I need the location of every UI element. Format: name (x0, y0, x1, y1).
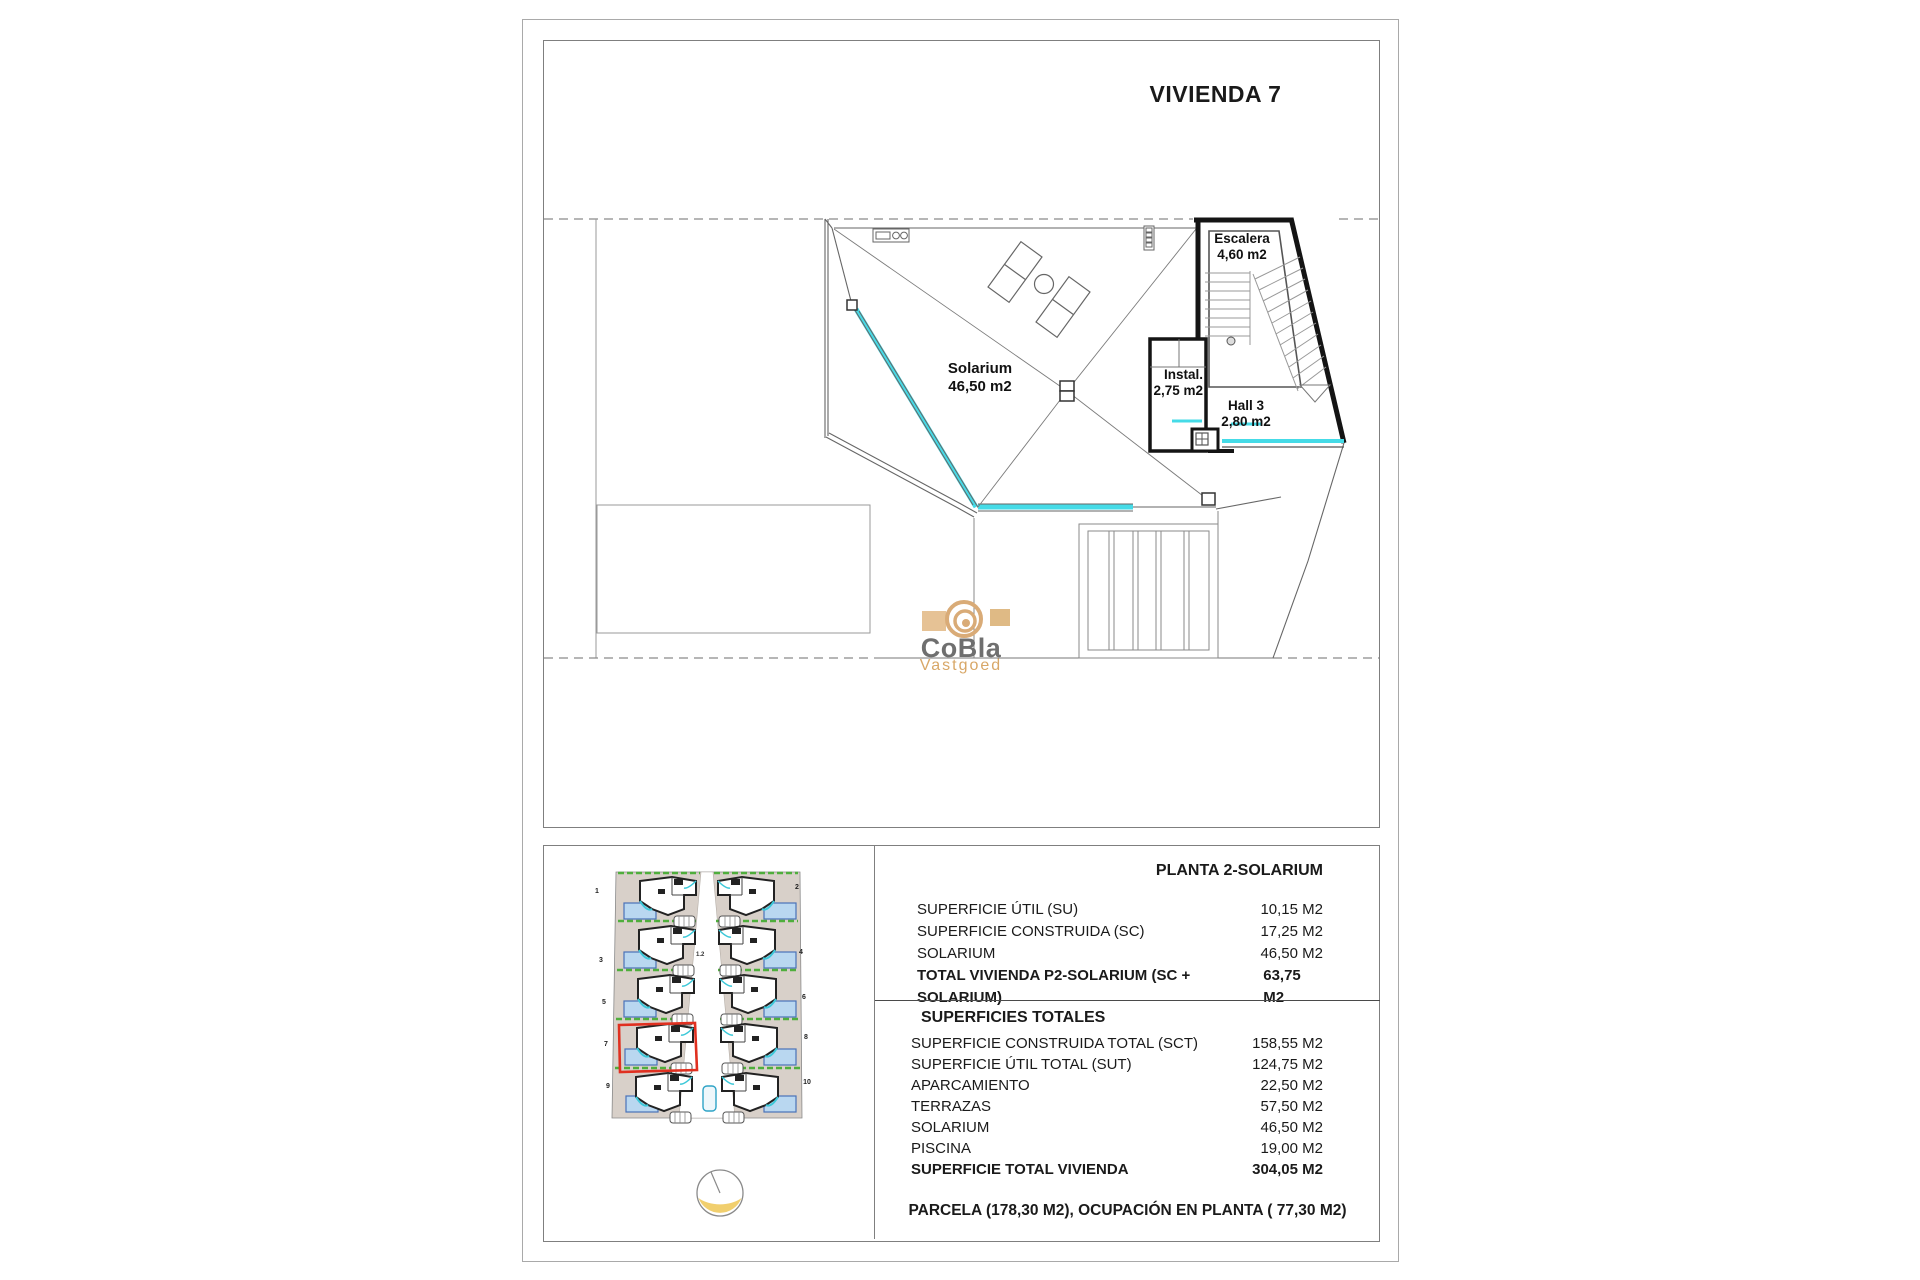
row-value: 46,50 M2 (1260, 943, 1323, 965)
row-label: PISCINA (911, 1138, 971, 1159)
table-row: SUPERFICIE CONSTRUIDA (SC) 17,25 M2 (875, 921, 1380, 943)
row-label: APARCAMIENTO (911, 1075, 1030, 1096)
floor-plan-drawing (544, 41, 1379, 827)
row-label: SOLARIUM (917, 943, 995, 965)
areas-table-cell: PLANTA 2-SOLARIUM SUPERFICIE ÚTIL (SU) 1… (874, 846, 1380, 1239)
table-row: SUPERFICIE CONSTRUIDA TOTAL (SCT) 158,55… (875, 1033, 1380, 1054)
row-label: SUPERFICIE ÚTIL TOTAL (SUT) (911, 1054, 1132, 1075)
page-title: VIVIENDA 7 (1108, 81, 1323, 108)
site-plan-thumbnail (544, 846, 874, 1239)
unit-number-2: 2 (790, 884, 804, 891)
table-row: SUPERFICIE ÚTIL (SU) 10,15 M2 (875, 899, 1380, 921)
row-label: SUPERFICIE CONSTRUIDA TOTAL (SCT) (911, 1033, 1198, 1054)
room-name: Hall 3 (1196, 398, 1296, 414)
car (703, 1086, 716, 1111)
info-panel: 1 2 3 4 5 6 7 8 9 10 1.2 PLANTA 2-SOLARI… (543, 845, 1380, 1242)
roof-vent-left (873, 229, 909, 242)
room-area: 46,50 m2 (920, 378, 1040, 396)
row-value: 57,50 M2 (1260, 1096, 1323, 1117)
unit-number-7: 7 (599, 1041, 613, 1048)
room-label-solarium: Solarium 46,50 m2 (920, 360, 1040, 396)
pergola (1079, 524, 1218, 658)
row-label: SUPERFICIE ÚTIL (SU) (917, 899, 1078, 921)
table-title-planta: PLANTA 2-SOLARIUM (1156, 862, 1323, 880)
sun-lounger (988, 242, 1090, 338)
table-row: SOLARIUM 46,50 M2 (875, 1117, 1380, 1138)
unit-number-4: 4 (794, 949, 808, 956)
room-name: Instal. (1115, 367, 1203, 383)
road-label: 1.2 (696, 952, 704, 958)
room-label-hall: Hall 3 2,80 m2 (1196, 398, 1296, 430)
unit-number-5: 5 (597, 999, 611, 1006)
table-separator (875, 1000, 1380, 1001)
row-label: TOTAL VIVIENDA P2-SOLARIUM (SC + SOLARIU… (917, 965, 1263, 987)
unit-number-9: 9 (601, 1083, 615, 1090)
unit-number-8: 8 (799, 1034, 813, 1041)
room-area: 2,80 m2 (1196, 414, 1296, 430)
table-row: TERRAZAS 57,50 M2 (875, 1096, 1380, 1117)
room-area: 4,60 m2 (1192, 247, 1292, 263)
table-row: SUPERFICIE ÚTIL TOTAL (SUT) 124,75 M2 (875, 1054, 1380, 1075)
floor-plan-panel (543, 40, 1380, 828)
lower-terrace (597, 505, 870, 633)
row-value: 17,25 M2 (1260, 921, 1323, 943)
roof-vent-right (1144, 226, 1154, 250)
unit-number-6: 6 (797, 994, 811, 1001)
table-row: PISCINA 19,00 M2 (875, 1138, 1380, 1159)
row-label: SOLARIUM (911, 1117, 989, 1138)
row-value: 10,15 M2 (1260, 899, 1323, 921)
room-label-escalera: Escalera 4,60 m2 (1192, 231, 1292, 263)
row-label: TERRAZAS (911, 1096, 991, 1117)
row-value: 304,05 M2 (1252, 1159, 1323, 1180)
room-name: Escalera (1192, 231, 1292, 247)
table-row-total: SUPERFICIE TOTAL VIVIENDA 304,05 M2 (875, 1159, 1380, 1180)
row-value: 124,75 M2 (1252, 1054, 1323, 1075)
row-label: SUPERFICIE CONSTRUIDA (SC) (917, 921, 1145, 943)
table-title-totales: SUPERFICIES TOTALES (921, 1009, 1105, 1027)
site-plan-cell: 1 2 3 4 5 6 7 8 9 10 1.2 (544, 846, 874, 1239)
parcela-line: PARCELA (178,30 M2), OCUPACIÓN EN PLANTA… (875, 1202, 1380, 1220)
cobla-logo-subtext: Vastgoed (903, 657, 1019, 675)
room-label-instal: Instal. 2,75 m2 (1115, 367, 1203, 398)
table-row: SOLARIUM 46,50 M2 (875, 943, 1380, 965)
planta-rows: SUPERFICIE ÚTIL (SU) 10,15 M2 SUPERFICIE… (875, 899, 1380, 987)
room-area: 2,75 m2 (1115, 383, 1203, 399)
totales-rows: SUPERFICIE CONSTRUIDA TOTAL (SCT) 158,55… (875, 1033, 1380, 1180)
unit-number-10: 10 (800, 1079, 814, 1086)
side-table (1035, 275, 1054, 294)
room-name: Solarium (920, 360, 1040, 378)
row-value: 19,00 M2 (1260, 1138, 1323, 1159)
table-row-total: TOTAL VIVIENDA P2-SOLARIUM (SC + SOLARIU… (875, 965, 1380, 987)
row-value: 63,75 M2 (1263, 965, 1323, 987)
row-value: 46,50 M2 (1260, 1117, 1323, 1138)
row-label: SUPERFICIE TOTAL VIVIENDA (911, 1159, 1129, 1180)
row-value: 158,55 M2 (1252, 1033, 1323, 1054)
unit-number-1: 1 (590, 888, 604, 895)
unit-number-3: 3 (594, 957, 608, 964)
row-value: 22,50 M2 (1260, 1075, 1323, 1096)
table-row: APARCAMIENTO 22,50 M2 (875, 1075, 1380, 1096)
compass-icon (697, 1170, 743, 1216)
